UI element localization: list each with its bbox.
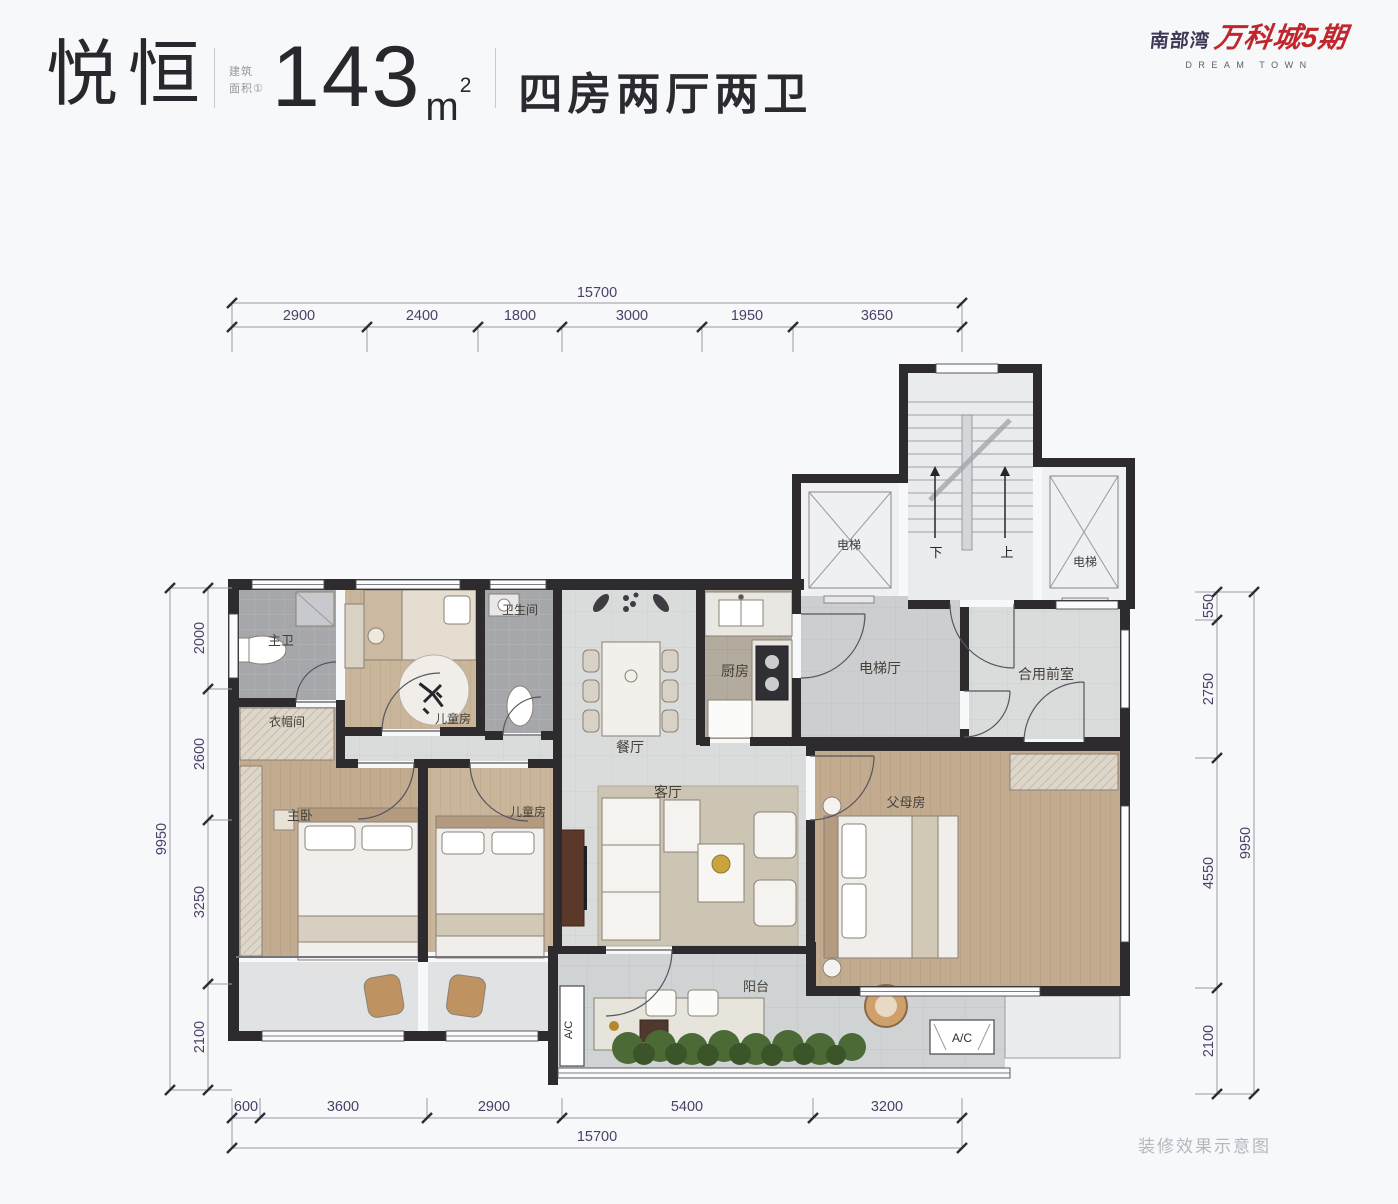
- dim-right-seg-2: 4550: [1201, 857, 1217, 889]
- dim-left-seg-2: 3250: [192, 886, 208, 918]
- label-stairs-up: 上: [1000, 545, 1013, 560]
- label-stairs-down: 下: [929, 545, 942, 560]
- dim-left-seg-1: 2600: [192, 738, 208, 770]
- room-floors: [237, 373, 1126, 1070]
- label-living: 客厅: [654, 784, 682, 800]
- dim-top-seg-3: 3000: [616, 308, 648, 324]
- child-room-2-furniture: [436, 816, 544, 958]
- dim-bottom-total: 15700: [577, 1129, 617, 1145]
- label-bathroom: 卫生间: [502, 603, 538, 617]
- label-balcony: 阳台: [743, 979, 769, 994]
- floorplan-canvas: 主卫 衣帽间 儿童房 卫生间 餐厅 厨房 电梯厅 合用前室 主卧 儿童房 客厅 …: [0, 0, 1398, 1204]
- label-master-bath: 主卫: [268, 633, 294, 648]
- dim-right-total: 9950: [1238, 827, 1254, 859]
- bay-lounge-chairs: [363, 973, 487, 1019]
- dim-left-total: 9950: [154, 823, 170, 855]
- tv-console: [560, 830, 584, 926]
- floor-child-bay: [428, 962, 548, 1031]
- dim-top-seg-4: 1950: [731, 308, 763, 324]
- watermark: 装修效果示意图: [1138, 1137, 1271, 1156]
- dim-right-seg-1: 2750: [1201, 673, 1217, 705]
- label-child-room-2: 儿童房: [510, 804, 546, 819]
- label-elevator-right: 电梯: [1073, 555, 1097, 569]
- label-master-bedroom: 主卧: [287, 808, 313, 823]
- label-parents-room: 父母房: [886, 795, 925, 810]
- label-child-room-top: 儿童房: [435, 711, 471, 726]
- dim-left-seg-0: 2000: [192, 622, 208, 654]
- floorplan-page: 悦恒 建筑 面积① 143 m2 四房两厅两卫 南部湾 万科城5期 DREAM …: [0, 0, 1398, 1204]
- label-elevator-left: 电梯: [837, 538, 861, 552]
- dim-top-seg-2: 1800: [504, 308, 536, 324]
- dim-top-total: 15700: [577, 285, 617, 301]
- dim-right-seg-3: 2100: [1201, 1025, 1217, 1057]
- label-dining: 餐厅: [616, 739, 644, 755]
- dim-bottom-seg-0: 600: [234, 1099, 258, 1115]
- dim-top-seg-0: 2900: [283, 308, 315, 324]
- label-ac-left: A/C: [563, 1021, 575, 1039]
- dim-bottom-seg-1: 3600: [327, 1099, 359, 1115]
- floor-corridor: [345, 736, 553, 761]
- dim-bottom-seg-2: 2900: [478, 1099, 510, 1115]
- label-cloakroom: 衣帽间: [269, 714, 305, 729]
- dim-right-seg-0: 550: [1201, 594, 1217, 618]
- dim-top-seg-1: 2400: [406, 308, 438, 324]
- dining-table: [583, 642, 678, 736]
- dim-left-seg-3: 2100: [192, 1021, 208, 1053]
- dim-bottom-seg-3: 5400: [671, 1099, 703, 1115]
- label-ac-right: A/C: [952, 1031, 972, 1045]
- dim-bottom-seg-4: 3200: [871, 1099, 903, 1115]
- dim-top-seg-5: 3650: [861, 308, 893, 324]
- label-elevator-hall: 电梯厅: [859, 660, 901, 676]
- label-kitchen: 厨房: [721, 663, 749, 679]
- label-shared-front-room: 合用前室: [1018, 666, 1074, 682]
- floor-ac-platform: [1005, 996, 1120, 1058]
